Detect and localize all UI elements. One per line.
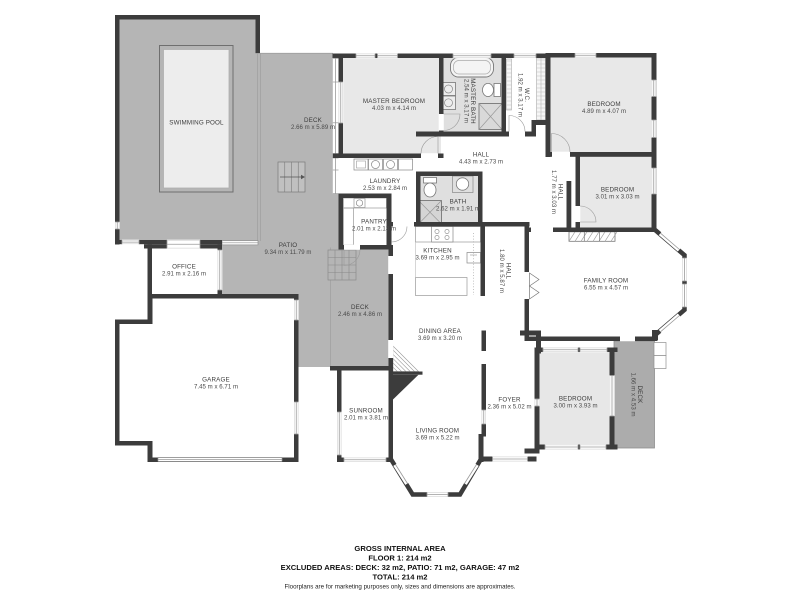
svg-text:1.80 m x 5.87 m: 1.80 m x 5.87 m	[498, 249, 504, 293]
svg-text:LAUNDRY: LAUNDRY	[370, 178, 401, 185]
svg-text:3.00 m x 3.93 m: 3.00 m x 3.93 m	[553, 404, 597, 410]
svg-text:FAMILY ROOM: FAMILY ROOM	[584, 278, 628, 285]
svg-text:2.01 m x 2.13 m: 2.01 m x 2.13 m	[352, 227, 396, 233]
svg-text:FLOOR 1: 214 m2: FLOOR 1: 214 m2	[368, 554, 431, 563]
svg-text:BEDROOM: BEDROOM	[559, 396, 592, 403]
svg-text:3.69 m x 3.20 m: 3.69 m x 3.20 m	[418, 336, 462, 342]
svg-text:KITCHEN: KITCHEN	[423, 248, 451, 255]
svg-text:LIVING ROOM: LIVING ROOM	[416, 428, 459, 435]
svg-text:SWIMMING POOL: SWIMMING POOL	[169, 120, 224, 127]
svg-text:W.C.: W.C.	[523, 88, 530, 102]
svg-text:MASTER BATH: MASTER BATH	[469, 78, 476, 124]
svg-text:SUNROOM: SUNROOM	[349, 408, 383, 415]
svg-text:PANTRY: PANTRY	[361, 219, 387, 226]
svg-text:MASTER BEDROOM: MASTER BEDROOM	[363, 98, 425, 105]
svg-text:2.66 m x 5.89 m: 2.66 m x 5.89 m	[291, 125, 335, 131]
svg-text:TOTAL: 214 m2: TOTAL: 214 m2	[373, 573, 428, 582]
svg-text:DINING AREA: DINING AREA	[419, 328, 462, 335]
svg-text:3.69 m x 2.95 m: 3.69 m x 2.95 m	[415, 256, 459, 262]
svg-text:2.62 m x 1.91 m: 2.62 m x 1.91 m	[436, 207, 480, 213]
svg-text:2.01 m x 3.81 m: 2.01 m x 3.81 m	[344, 416, 388, 422]
svg-text:BEDROOM: BEDROOM	[587, 101, 620, 108]
svg-text:2.46 m x 4.86 m: 2.46 m x 4.86 m	[338, 312, 382, 318]
svg-text:BEDROOM: BEDROOM	[601, 187, 634, 194]
svg-text:2.91 m x 2.16 m: 2.91 m x 2.16 m	[162, 272, 206, 278]
svg-text:2.53 m x 2.84 m: 2.53 m x 2.84 m	[363, 186, 407, 192]
svg-text:4.89 m x 4.07 m: 4.89 m x 4.07 m	[582, 109, 626, 115]
svg-text:PATIO: PATIO	[279, 242, 298, 249]
svg-text:EXCLUDED AREAS: DECK: 32 m2, P: EXCLUDED AREAS: DECK: 32 m2, PATIO: 71 m…	[281, 563, 520, 572]
svg-text:3.69 m x 5.22 m: 3.69 m x 5.22 m	[415, 436, 459, 442]
svg-text:1.66 m x 4.53 m: 1.66 m x 4.53 m	[630, 372, 636, 416]
svg-text:Floorplans are for marketing p: Floorplans are for marketing purposes on…	[285, 584, 516, 591]
svg-text:DECK: DECK	[636, 386, 643, 405]
svg-text:HALL: HALL	[505, 263, 512, 280]
svg-text:1.77 m x 3.03 m: 1.77 m x 3.03 m	[550, 170, 556, 214]
svg-text:GARAGE: GARAGE	[202, 377, 230, 384]
svg-text:4.43 m x 2.73 m: 4.43 m x 2.73 m	[459, 160, 503, 166]
svg-text:3.01 m x 3.03 m: 3.01 m x 3.03 m	[595, 195, 639, 201]
svg-text:OFFICE: OFFICE	[172, 264, 196, 271]
svg-text:GROSS INTERNAL AREA: GROSS INTERNAL AREA	[354, 544, 446, 553]
svg-text:BATH: BATH	[450, 199, 467, 206]
svg-text:7.45 m x 6.71 m: 7.45 m x 6.71 m	[194, 385, 238, 391]
svg-text:4.03 m x 4.14 m: 4.03 m x 4.14 m	[372, 106, 416, 112]
svg-text:HALL: HALL	[473, 152, 490, 159]
svg-text:6.55 m x 4.57 m: 6.55 m x 4.57 m	[584, 286, 628, 292]
svg-text:DECK: DECK	[304, 117, 323, 124]
svg-text:9.34 m x 11.79 m: 9.34 m x 11.79 m	[264, 250, 311, 256]
svg-text:HALL: HALL	[557, 184, 564, 201]
svg-text:DECK: DECK	[351, 304, 370, 311]
svg-text:2.36 m x 5.02 m: 2.36 m x 5.02 m	[487, 405, 531, 411]
svg-text:2.54 m x 3.17 m: 2.54 m x 3.17 m	[463, 79, 469, 123]
svg-text:1.92 m x 3.17 m: 1.92 m x 3.17 m	[517, 73, 523, 117]
svg-text:FOYER: FOYER	[498, 397, 521, 404]
